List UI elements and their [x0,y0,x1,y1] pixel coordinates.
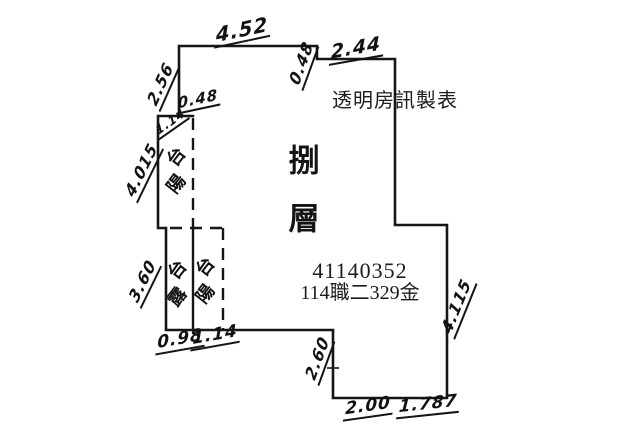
maker-label: 透明房訊製表 [332,91,458,111]
room-label-terrace: 露台 [169,262,187,307]
floor-plan-canvas: 透明房訊製表 捌層 41140352 114職二329金 陽台 露台 陽台 4.… [0,0,640,443]
case-number: 41140352 [312,260,407,282]
floor-label: 捌層 [289,146,320,235]
room-label-balcony-upper: 陽台 [168,149,186,194]
room-label-balcony-lower: 陽台 [197,259,215,304]
case-code: 114職二329金 [300,283,419,303]
